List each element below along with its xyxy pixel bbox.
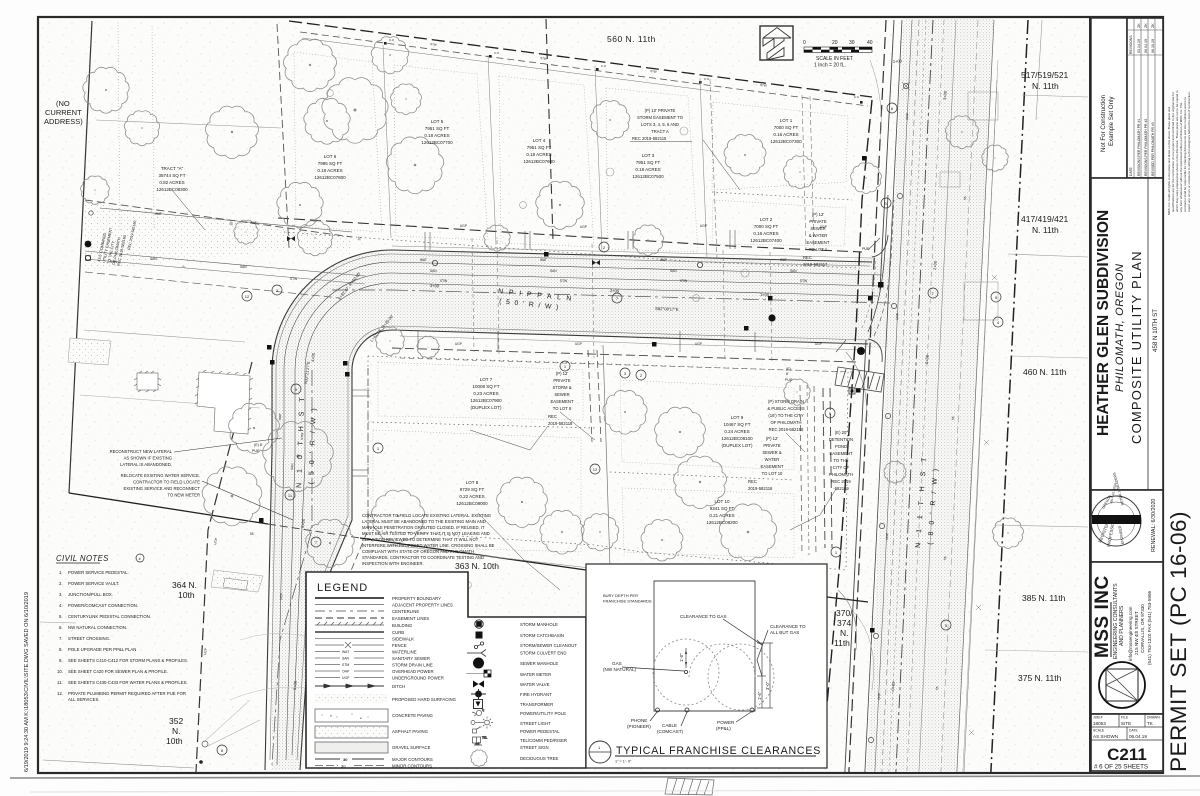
svg-text:0.23 ACRES: 0.23 ACRES (473, 391, 498, 396)
svg-text:STORM &: STORM & (552, 385, 571, 390)
svg-text:6/19/2019 9:24:30 AM K:\18: 6/19/2019 9:24:30 AM K:\18053\CIVIL\SITE… (24, 592, 30, 772)
svg-text:WAT: WAT (780, 258, 787, 262)
svg-text:TRACT "A": TRACT "A" (161, 166, 184, 171)
svg-text:12: 12 (245, 294, 250, 299)
svg-text:SEE SHEETS C430-C433 FOR W: SEE SHEETS C430-C433 FOR WATER PLANS & P… (68, 680, 188, 685)
svg-text:C.O: C.O (854, 95, 860, 99)
svg-text:DATE: DATE (1129, 729, 1139, 733)
svg-text:6.: 6. (59, 625, 63, 630)
svg-text:STM: STM (342, 663, 349, 667)
svg-text:CONTRACTOR TO FIELD LOCATE: CONTRACTOR TO FIELD LOCATE (133, 480, 200, 485)
svg-text:06.04.19: 06.04.19 (1144, 39, 1148, 53)
svg-text:N. 11th: N. 11th (1032, 225, 1059, 235)
svg-text:UNDERGROUND POWER: UNDERGROUND POWER (392, 676, 444, 681)
svg-text:SIDEWALK: SIDEWALK (392, 637, 414, 642)
svg-text:0+00: 0+00 (924, 354, 930, 364)
svg-text:ASPHALT PAVING: ASPHALT PAVING (392, 729, 429, 734)
svg-text:-582159: -582159 (833, 486, 849, 491)
svg-text:DRAWN: DRAWN (1147, 716, 1160, 720)
svg-text:(P) 10' PRIVATE: (P) 10' PRIVATE (645, 108, 676, 113)
svg-text:12612BC07800: 12612BC07800 (314, 175, 346, 180)
svg-text:30: 30 (849, 40, 855, 46)
svg-text:UGP: UGP (575, 342, 582, 346)
svg-text:(PIONEER): (PIONEER) (627, 724, 651, 729)
svg-text:TO LOT 10: TO LOT 10 (762, 471, 783, 476)
svg-text:35744 SQ FT: 35744 SQ FT (158, 173, 185, 178)
svg-text:SEE SHEET C420 FOR SEWER: SEE SHEET C420 FOR SEWER PLAN & PROFILE. (68, 669, 168, 674)
svg-text:PRIVATE: PRIVATE (763, 443, 781, 448)
svg-text:WAT: WAT (155, 212, 162, 216)
svg-text:CONCRETE PAVING: CONCRETE PAVING (392, 713, 434, 718)
svg-text:LOT 4: LOT 4 (533, 138, 546, 143)
svg-text:1.: 1. (59, 570, 63, 575)
svg-text:2019-582117: 2019-582117 (803, 262, 828, 267)
svg-text:0.16 ACRES: 0.16 ACRES (773, 132, 798, 137)
svg-text:UGP: UGP (342, 676, 350, 680)
svg-text:REC 2019-582115: REC 2019-582115 (632, 136, 667, 141)
svg-text:TRACT A: TRACT A (651, 129, 669, 134)
svg-text:DATE: DATE (1129, 166, 1133, 176)
svg-text:12612BC08200: 12612BC08200 (706, 520, 738, 525)
svg-text:8.: 8. (59, 647, 63, 652)
svg-text:AND PLANNERS: AND PLANNERS (1119, 605, 1125, 646)
svg-text:LOT 10: LOT 10 (715, 499, 730, 504)
svg-text:12612BC07700: 12612BC07700 (421, 140, 453, 145)
svg-text:WAT: WAT (540, 258, 547, 262)
svg-text:POWER PEDESTAL: POWER PEDESTAL (520, 729, 560, 734)
svg-text:EASEMENT LINES: EASEMENT LINES (392, 616, 429, 621)
svg-text:LOT 9: LOT 9 (731, 415, 744, 420)
svg-text:STW: STW (680, 279, 687, 283)
svg-text:STORM DRAIN LINE: STORM DRAIN LINE (392, 663, 433, 668)
svg-text:10.: 10. (57, 669, 63, 674)
svg-text:PUE: PUE (785, 378, 793, 382)
svg-text:5.: 5. (59, 614, 63, 619)
svg-text:COMPLIANT WITH STATE OF OR: COMPLIANT WITH STATE OF OREGON AND PHILO… (362, 549, 474, 554)
svg-text:REVISIONS PER PHILOMATH PR #1: REVISIONS PER PHILOMATH PR #1 (1137, 119, 1141, 176)
svg-text:1" = 1'- 0": 1" = 1'- 0" (615, 760, 632, 764)
svg-text:BUILDING: BUILDING (392, 623, 413, 628)
svg-text:215 NW 4th STREET: 215 NW 4th STREET (1134, 611, 1139, 655)
svg-text:SCALE IN FEET: SCALE IN FEET (816, 56, 853, 62)
svg-text:0.22 ACRES: 0.22 ACRES (459, 494, 484, 499)
svg-text:WATERLINE: WATERLINE (392, 650, 417, 655)
svg-text:ELEVATION REVIEWED TO DETER: ELEVATION REVIEWED TO DETERMINE THAT IT … (362, 537, 479, 542)
svg-text:LOT 7: LOT 7 (480, 377, 493, 382)
svg-text:POWER/COMCAST CONNECTION.: POWER/COMCAST CONNECTION. (68, 603, 138, 608)
svg-text:370/: 370/ (836, 608, 853, 618)
svg-text:DETENTION: DETENTION (829, 437, 853, 442)
svg-text:CITY OF: CITY OF (833, 465, 850, 470)
svg-text:CURRENT: CURRENT (45, 108, 82, 117)
svg-text:560 N. 11th: 560 N. 11th (607, 34, 656, 44)
svg-text:POND: POND (835, 444, 847, 449)
svg-text:WAT: WAT (278, 413, 282, 420)
svg-text:10th: 10th (166, 736, 183, 746)
svg-text:DECIDUOUS TREE: DECIDUOUS TREE (520, 756, 558, 761)
svg-text:WATER VALVE: WATER VALVE (520, 682, 550, 687)
svg-text:CENTERLINE: CENTERLINE (392, 609, 419, 614)
svg-text:PHILOMATH, OREGON: PHILOMATH, OREGON (1114, 263, 1126, 392)
svg-text:UGP: UGP (460, 224, 467, 228)
svg-text:FILE: FILE (1121, 716, 1129, 720)
svg-text:REC 2019: REC 2019 (831, 479, 851, 484)
svg-text:4.: 4. (59, 603, 63, 608)
svg-text:1+00: 1+00 (893, 58, 903, 64)
svg-text:55: 55 (943, 556, 947, 560)
svg-text:PUE: PUE (252, 449, 260, 453)
svg-text:SAN: SAN (550, 269, 557, 273)
svg-text:06.04.19: 06.04.19 (1129, 734, 1147, 739)
svg-text:OHP: OHP (885, 533, 889, 540)
svg-text:0.21 ACRES: 0.21 ACRES (709, 513, 734, 518)
svg-text:8': 8' (786, 372, 789, 376)
svg-text:12612BC08100: 12612BC08100 (721, 436, 753, 441)
svg-text:FENCE: FENCE (392, 643, 407, 648)
svg-text:517/519/521: 517/519/521 (1021, 70, 1069, 80)
svg-text:30: 30 (343, 757, 348, 762)
svg-text:POLE UPGRADE PER PP&L PLAN: POLE UPGRADE PER PP&L PLAN (68, 647, 136, 652)
svg-text:10467 SQ FT: 10467 SQ FT (723, 422, 750, 427)
svg-text:STREET LIGHT: STREET LIGHT (520, 721, 551, 726)
svg-text:POWER: POWER (717, 720, 735, 725)
svg-text:Not For Construction: Not For Construction (1100, 94, 1107, 152)
svg-text:report any errors or omissions: report any errors or omissions in writin… (1187, 91, 1191, 212)
svg-text:460 N. 11th: 460 N. 11th (1023, 367, 1067, 377)
svg-text:REC 2019-582158: REC 2019-582158 (769, 427, 804, 432)
svg-text:REC: REC (803, 255, 812, 260)
svg-text:SCALE: SCALE (1093, 729, 1105, 733)
svg-text:7951 SQ FT: 7951 SQ FT (425, 126, 450, 131)
svg-text:3.: 3. (59, 592, 63, 597)
svg-text:TRANSFORMER: TRANSFORMER (520, 702, 553, 707)
svg-text:WAT: WAT (420, 258, 427, 262)
svg-text:LOT 2: LOT 2 (760, 217, 773, 222)
svg-text:20: 20 (832, 40, 838, 46)
svg-text:9341 SQ FT: 9341 SQ FT (710, 506, 735, 511)
svg-text:0: 0 (803, 40, 806, 46)
svg-text:STW: STW (560, 279, 567, 283)
svg-text:417/419/421: 417/419/421 (1021, 214, 1069, 224)
svg-text:& PUBLIC ACCESS: & PUBLIC ACCESS (767, 406, 804, 411)
svg-text:12612BC08300: 12612BC08300 (156, 187, 188, 192)
svg-text:STW: STW (110, 260, 117, 264)
svg-text:TO LOT 1: TO LOT 1 (809, 247, 828, 252)
svg-text:CLEARANCE TO: CLEARANCE TO (770, 624, 806, 629)
svg-text:CORVALLIS, OR 97330: CORVALLIS, OR 97330 (1140, 604, 1145, 653)
svg-text:OVERHEAD POWER: OVERHEAD POWER (392, 669, 434, 674)
svg-text:SAN: SAN (342, 657, 350, 661)
svg-text:GRAVEL SURFACE: GRAVEL SURFACE (392, 745, 431, 750)
svg-text:SEE SHEETS C410-C412 FOR S: SEE SHEETS C410-C412 FOR STORM PLANS & P… (68, 658, 188, 663)
svg-text:(541) 753-1320 FAX:(541) 753: (541) 753-1320 FAX:(541) 753-5956 (1147, 590, 1152, 665)
svg-text:STORM CATCHBASIN: STORM CATCHBASIN (520, 633, 564, 638)
svg-text:LOT 8: LOT 8 (466, 480, 479, 485)
svg-text:HEATHER GLEN SUBDIVISION: HEATHER GLEN SUBDIVISION (1095, 210, 1112, 436)
svg-text:1'-0": 1'-0" (679, 653, 684, 662)
svg-text:REC: REC (748, 479, 757, 484)
svg-text:STW: STW (290, 277, 297, 281)
svg-text:GAS: GAS (612, 661, 622, 666)
svg-text:0.82 ACRES: 0.82 ACRES (159, 180, 184, 185)
svg-text:MUST BE AIR TESTED TO VER: MUST BE AIR TESTED TO VERIFY THAT IT IS … (362, 531, 490, 536)
svg-text:WATER METER: WATER METER (520, 672, 551, 677)
svg-text:BURY DEPTH PER: BURY DEPTH PER (603, 593, 638, 598)
svg-text:3+00: 3+00 (942, 90, 948, 100)
svg-text:EXISTING SERVICE AND RECONN: EXISTING SERVICE AND RECONNECT (124, 486, 201, 491)
svg-text:11th: 11th (834, 638, 850, 648)
svg-text:PHONE: PHONE (631, 718, 647, 723)
svg-text:9.: 9. (59, 658, 63, 663)
svg-text:364 N.: 364 N. (172, 580, 197, 590)
svg-text:ALL BUT GAS: ALL BUT GAS (770, 630, 799, 635)
svg-text:ZK: ZK (1151, 23, 1155, 28)
svg-text:10008 SQ FT: 10008 SQ FT (472, 384, 499, 389)
svg-text:UGP: UGP (279, 593, 284, 600)
svg-text:CURB: CURB (392, 630, 404, 635)
svg-text:STW: STW (650, 69, 657, 74)
svg-text:PRIVATE: PRIVATE (809, 219, 827, 224)
svg-text:6+00: 6+00 (292, 680, 298, 690)
svg-text:STW: STW (760, 83, 767, 88)
svg-text:SAN: SAN (430, 269, 437, 273)
svg-text:OHP: OHP (342, 670, 350, 674)
svg-text:REC: REC (548, 414, 557, 419)
svg-text:PHILOMATH: PHILOMATH (829, 472, 853, 477)
svg-text:STW: STW (800, 279, 807, 283)
svg-text:S82°08'17"E: S82°08'17"E (655, 306, 679, 312)
svg-text:0.18 ACRES: 0.18 ACRES (424, 133, 449, 138)
svg-text:POWER SERVICE VAULT.: POWER SERVICE VAULT. (68, 581, 119, 586)
svg-text:7000 SQ FT: 7000 SQ FT (774, 125, 799, 130)
svg-text:(DUPLEX LOT): (DUPLEX LOT) (470, 405, 502, 410)
svg-text:LEGEND: LEGEND (317, 582, 368, 594)
svg-text:06.10.19: 06.10.19 (1151, 39, 1155, 53)
svg-text:MANHOLE PENETRATION GROUTED: MANHOLE PENETRATION GROUTED CLOSED. IF R… (362, 525, 485, 530)
svg-text:LOTS 3, 4, 5, 6 AND: LOTS 3, 4, 5, 6 AND (641, 122, 679, 127)
svg-text:LOT 1: LOT 1 (780, 118, 793, 123)
svg-text:N. 11th: N. 11th (1032, 81, 1059, 91)
svg-text:9729 SQ FT: 9729 SQ FT (460, 487, 485, 492)
svg-text:REVISIONS PER PHILOMATH PR #2: REVISIONS PER PHILOMATH PR #2 (1144, 119, 1148, 176)
svg-text:FIRE HYDRANT: FIRE HYDRANT (520, 692, 552, 697)
svg-text:PRIVATE: PRIVATE (553, 378, 571, 383)
svg-text:INTERFERE WITH PROPOSED WAT: INTERFERE WITH PROPOSED WATER LINE. CROS… (362, 543, 495, 548)
svg-text:12612BC07400: 12612BC07400 (750, 238, 782, 243)
svg-text:TO THE: TO THE (833, 458, 848, 463)
svg-text:SAN: SAN (240, 265, 247, 269)
svg-text:UGP: UGP (815, 342, 822, 346)
svg-text:3+00: 3+00 (430, 283, 440, 289)
svg-text:PERMIT SET (PC 16-06): PERMIT SET (PC 16-06) (1166, 511, 1191, 772)
svg-text:PROPOSED HARD SURFACING: PROPOSED HARD SURFACING (392, 697, 457, 702)
svg-text:POWER/UTILITY POLE: POWER/UTILITY POLE (520, 711, 566, 716)
svg-text:TK: TK (1147, 721, 1154, 726)
svg-text:MSS INC: MSS INC (1092, 575, 1113, 658)
svg-text:C.O: C.O (389, 38, 395, 42)
svg-text:12612BC07900: 12612BC07900 (470, 398, 502, 403)
svg-text:SEWER MANHOLE: SEWER MANHOLE (520, 661, 558, 666)
svg-text:MAJOR CONTOURS: MAJOR CONTOURS (392, 757, 433, 762)
svg-text:CLEARANCE TO GAS: CLEARANCE TO GAS (680, 614, 727, 619)
svg-text:12.: 12. (57, 691, 63, 696)
svg-text:SANITARY SEWER: SANITARY SEWER (392, 656, 430, 661)
svg-text:STW: STW (540, 56, 547, 61)
svg-text:RECONSTRUCT NEW LATERAL: RECONSTRUCT NEW LATERAL (110, 449, 173, 454)
svg-text:POWER SERVICE PEDESTAL.: POWER SERVICE PEDESTAL. (68, 570, 129, 575)
svg-text:363 N. 10th: 363 N. 10th (455, 561, 499, 571)
svg-text:STORM CULVERT END: STORM CULVERT END (520, 651, 566, 656)
svg-text:UGP: UGP (695, 342, 702, 346)
svg-text:12612BC07500: 12612BC07500 (632, 174, 664, 179)
svg-text:STW: STW (430, 42, 437, 47)
svg-text:CABLE: CABLE (662, 723, 677, 728)
svg-text:& WATER: & WATER (809, 233, 828, 238)
svg-text:ADDRESS): ADDRESS) (44, 117, 83, 126)
svg-text:JUNCTION/PULL BOX.: JUNCTION/PULL BOX. (68, 592, 113, 597)
svg-text:STREET SIGN: STREET SIGN (520, 745, 549, 750)
svg-text:7995 SQ FT: 7995 SQ FT (318, 161, 343, 166)
svg-text:STORM MANHOLE: STORM MANHOLE (520, 622, 558, 627)
svg-text:458 N 10TH ST: 458 N 10TH ST (1152, 309, 1159, 352)
svg-text:2+00: 2+00 (610, 288, 620, 294)
svg-text:SEWER &: SEWER & (762, 450, 782, 455)
svg-text:352: 352 (169, 716, 183, 726)
svg-text:LOT 6: LOT 6 (324, 154, 337, 159)
svg-text:ZK: ZK (1137, 23, 1141, 28)
svg-text:AS SHOWN: AS SHOWN (1093, 734, 1118, 739)
svg-text:COMPOSITE UTILITY PLAN: COMPOSITE UTILITY PLAN (1129, 250, 1144, 444)
svg-text:5+00: 5+00 (300, 518, 306, 528)
svg-text:7951 SQ FT: 7951 SQ FT (636, 160, 661, 165)
svg-text:STORM EASEMENT TO: STORM EASEMENT TO (637, 115, 684, 120)
svg-text:PROPERTY BOUNDARY: PROPERTY BOUNDARY (392, 596, 441, 601)
svg-text:TO NEW METER: TO NEW METER (168, 493, 201, 498)
svg-text:EASEMENT: EASEMENT (806, 240, 829, 245)
svg-text:WAT: WAT (250, 221, 257, 225)
svg-text:12612BC07300: 12612BC07300 (770, 139, 802, 144)
svg-text:375 N. 11th: 375 N. 11th (1018, 673, 1062, 683)
svg-text:0.18 ACRES: 0.18 ACRES (526, 152, 551, 157)
svg-text:(P) 12': (P) 12' (556, 371, 568, 376)
svg-text:0.16 ACRES: 0.16 ACRES (753, 231, 778, 236)
svg-text:SEWER: SEWER (554, 392, 569, 397)
svg-text:# 6 OF 25 SHEETS: # 6 OF 25 SHEETS (1094, 764, 1148, 771)
svg-text:TEL/COMM PED/RISER: TEL/COMM PED/RISER (520, 738, 567, 743)
svg-text:385 N. 11th: 385 N. 11th (1022, 593, 1066, 603)
svg-text:NW NATURAL CONNECTION.: NW NATURAL CONNECTION. (68, 625, 127, 630)
svg-text:STORM/SEWER CLEANOUT: STORM/SEWER CLEANOUT (520, 643, 577, 648)
svg-text:55: 55 (250, 532, 254, 536)
svg-text:374: 374 (837, 618, 851, 628)
svg-text:(DUPLEX LOT): (DUPLEX LOT) (721, 443, 753, 448)
svg-text:SAN: SAN (790, 269, 797, 273)
svg-text:0.18 ACRES: 0.18 ACRES (317, 168, 342, 173)
svg-text:N.: N. (840, 628, 849, 638)
svg-text:ZK: ZK (1144, 23, 1148, 28)
svg-text:18053: 18053 (1093, 721, 1106, 726)
svg-text:(COMCAST): (COMCAST) (657, 729, 683, 734)
svg-text:(NO: (NO (56, 99, 70, 108)
svg-text:EASEMENT: EASEMENT (829, 451, 852, 456)
svg-text:STREET CROSSING.: STREET CROSSING. (68, 636, 110, 641)
svg-text:30: 30 (341, 764, 346, 769)
svg-text:UGP: UGP (700, 224, 707, 228)
svg-text:0.24 ACRES: 0.24 ACRES (724, 429, 749, 434)
svg-text:C.O: C.O (704, 77, 710, 81)
svg-text:SAN: SAN (670, 269, 677, 273)
svg-text:TO LOT 8: TO LOT 8 (553, 406, 572, 411)
svg-text:RENEWAL: 6/30/2020: RENEWAL: 6/30/2020 (1151, 499, 1157, 552)
svg-text:7951 SQ FT: 7951 SQ FT (527, 145, 552, 150)
svg-text:MINOR CONTOURS: MINOR CONTOURS (392, 764, 432, 769)
svg-text:N.: N. (172, 726, 181, 736)
svg-text:PRIVATE PLUMBING PERMIT REQ: PRIVATE PLUMBING PERMIT REQUIRED AFTER P… (68, 691, 186, 696)
svg-text:(E) 20': (E) 20' (835, 430, 847, 435)
svg-text:7.: 7. (59, 636, 63, 641)
svg-text:OHP: OHP (905, 113, 909, 120)
svg-text:LOT 5: LOT 5 (431, 119, 444, 124)
svg-text:RELOCATE EXISTING WATER SER: RELOCATE EXISTING WATER SERVICE. (121, 473, 200, 478)
svg-text:(PP&L): (PP&L) (716, 726, 731, 731)
svg-text:(P) STORM DRAIN: (P) STORM DRAIN (768, 399, 804, 404)
svg-text:55: 55 (951, 416, 955, 420)
svg-text:STW: STW (300, 433, 304, 440)
svg-text:LOT 3: LOT 3 (642, 153, 655, 158)
svg-text:2019-582118: 2019-582118 (548, 421, 573, 426)
svg-text:LATERAL MUST BE ABANDONED: LATERAL MUST BE ABANDONED TO THE EXISTIN… (362, 519, 486, 524)
svg-text:10th: 10th (178, 590, 195, 600)
svg-text:2+00: 2+00 (932, 260, 938, 270)
svg-text:2.: 2. (59, 581, 63, 586)
svg-text:SAN: SAN (150, 257, 157, 261)
svg-text:STW: STW (440, 279, 447, 283)
svg-text:TYPICAL FRANCHISE CLEARANCES: TYPICAL FRANCHISE CLEARANCES (616, 745, 821, 757)
svg-text:4+00: 4+00 (310, 352, 316, 362)
svg-text:FRANCHISE STANDARDS: FRANCHISE STANDARDS (603, 599, 652, 604)
svg-text:03.14.19: 03.14.19 (1137, 39, 1141, 53)
svg-text:JOB #: JOB # (1093, 716, 1103, 720)
svg-text:WAT: WAT (660, 258, 667, 262)
svg-text:ALL SERVICES.: ALL SERVICES. (68, 697, 100, 702)
svg-text:info@mssengineering.com: info@mssengineering.com (1128, 606, 1133, 661)
svg-text:(E): (E) (786, 367, 791, 371)
svg-text:-0+89: -0+89 (890, 681, 896, 693)
svg-text:WATER: WATER (765, 457, 780, 462)
svg-text:12612BC08000: 12612BC08000 (456, 501, 488, 506)
svg-text:OHP: OHP (895, 313, 899, 320)
svg-text:EASEMENT: EASEMENT (550, 399, 573, 404)
svg-text:CENTURYLINK PEDISTAL CONNECT: CENTURYLINK PEDISTAL CONNECTION. (68, 614, 151, 619)
svg-text:(E) 8': (E) 8' (254, 443, 263, 447)
svg-text:(P) 12': (P) 12' (812, 212, 824, 217)
svg-text:12: 12 (593, 467, 598, 472)
svg-text:1 Inch = 20 fL.: 1 Inch = 20 fL. (814, 63, 846, 69)
svg-text:0.18 ACRES: 0.18 ACRES (635, 167, 660, 172)
svg-text:UGP: UGP (455, 342, 462, 346)
svg-text:OF PHILOMATH: OF PHILOMATH (770, 420, 801, 425)
svg-text:55: 55 (935, 686, 939, 690)
svg-text:7000 SQ FT: 7000 SQ FT (754, 224, 779, 229)
svg-text:(P) 12': (P) 12' (766, 436, 778, 441)
svg-text:TEL: TEL (482, 736, 488, 740)
svg-text:C.O: C.O (601, 64, 607, 68)
svg-text:55: 55 (963, 196, 967, 200)
svg-text:AS SHOWN IF EXISTING: AS SHOWN IF EXISTING (124, 456, 172, 461)
svg-text:1'-6": 1'-6" (757, 691, 762, 700)
svg-text:Example Set Only: Example Set Only (1108, 96, 1115, 146)
svg-text:ADJACENT PROPERTY LINES: ADJACENT PROPERTY LINES (392, 603, 453, 608)
